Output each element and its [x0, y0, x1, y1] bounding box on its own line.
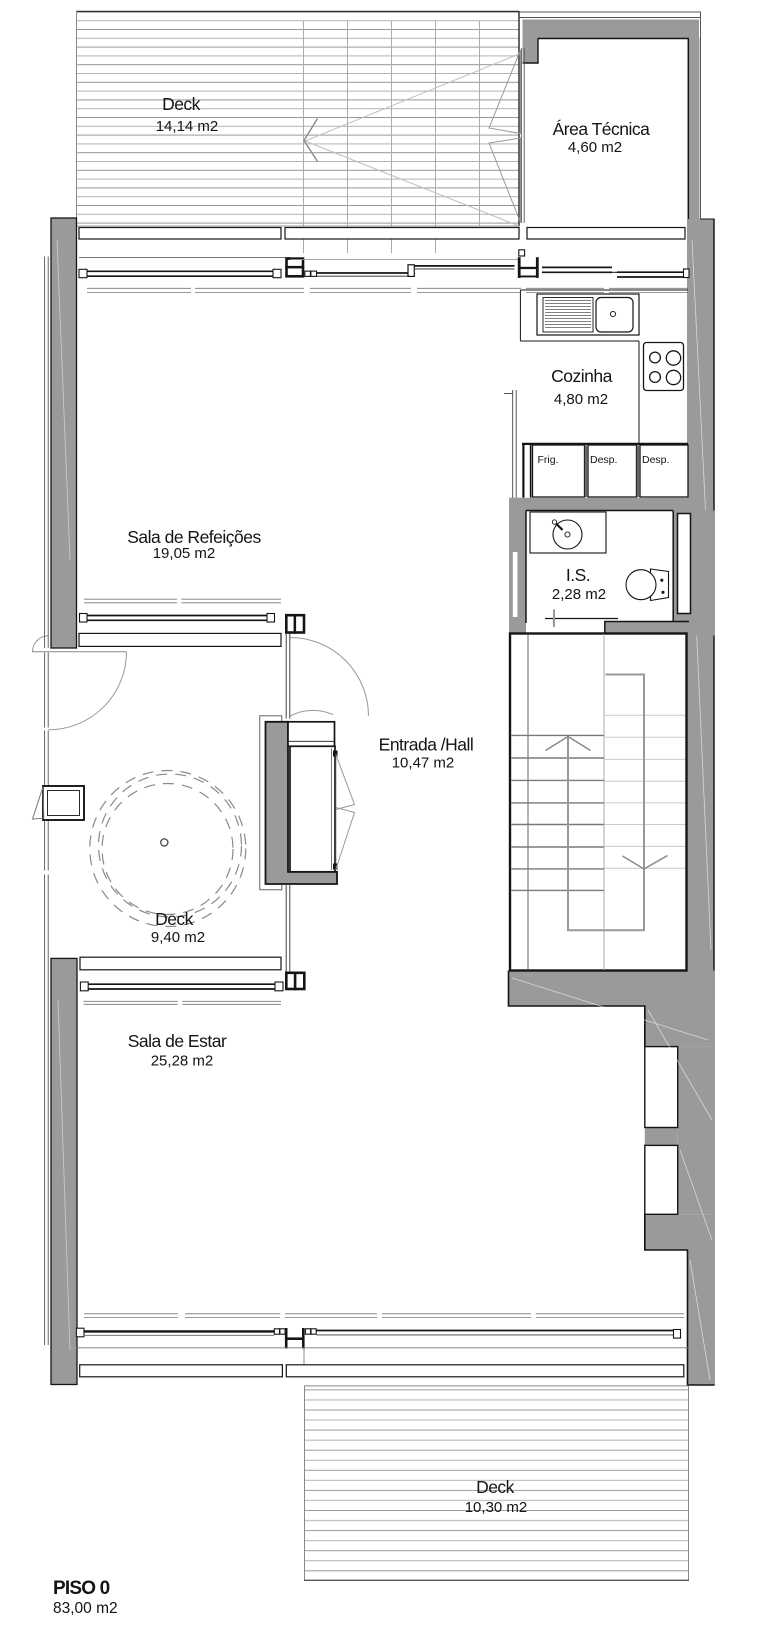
svg-text:Cozinha: Cozinha [551, 366, 612, 386]
svg-text:Sala de Refeições: Sala de Refeições [127, 527, 261, 547]
svg-text:4,60 m2: 4,60 m2 [568, 139, 622, 156]
svg-text:Frig.: Frig. [538, 454, 559, 466]
svg-text:19,05 m2: 19,05 m2 [153, 545, 216, 562]
svg-text:Desp.: Desp. [642, 454, 669, 466]
svg-text:Entrada /Hall: Entrada /Hall [379, 735, 474, 755]
svg-text:Deck: Deck [155, 909, 194, 929]
svg-text:4,80 m2: 4,80 m2 [554, 391, 608, 408]
svg-text:2,28 m2: 2,28 m2 [552, 586, 606, 603]
svg-text:10,47 m2: 10,47 m2 [392, 755, 455, 772]
svg-text:Área Técnica: Área Técnica [553, 119, 651, 139]
svg-text:14,14 m2: 14,14 m2 [156, 118, 219, 135]
svg-text:Deck: Deck [162, 94, 201, 114]
svg-text:Deck: Deck [476, 1477, 515, 1497]
svg-text:Desp.: Desp. [590, 454, 617, 466]
svg-text:9,40 m2: 9,40 m2 [151, 929, 205, 946]
svg-text:Sala de Estar: Sala de Estar [128, 1031, 227, 1051]
svg-text:83,00 m2: 83,00 m2 [53, 1600, 118, 1617]
svg-text:PISO 0: PISO 0 [53, 1578, 110, 1599]
svg-text:25,28 m2: 25,28 m2 [151, 1053, 214, 1070]
svg-text:10,30 m2: 10,30 m2 [465, 1499, 528, 1516]
svg-text:I.S.: I.S. [566, 565, 590, 585]
